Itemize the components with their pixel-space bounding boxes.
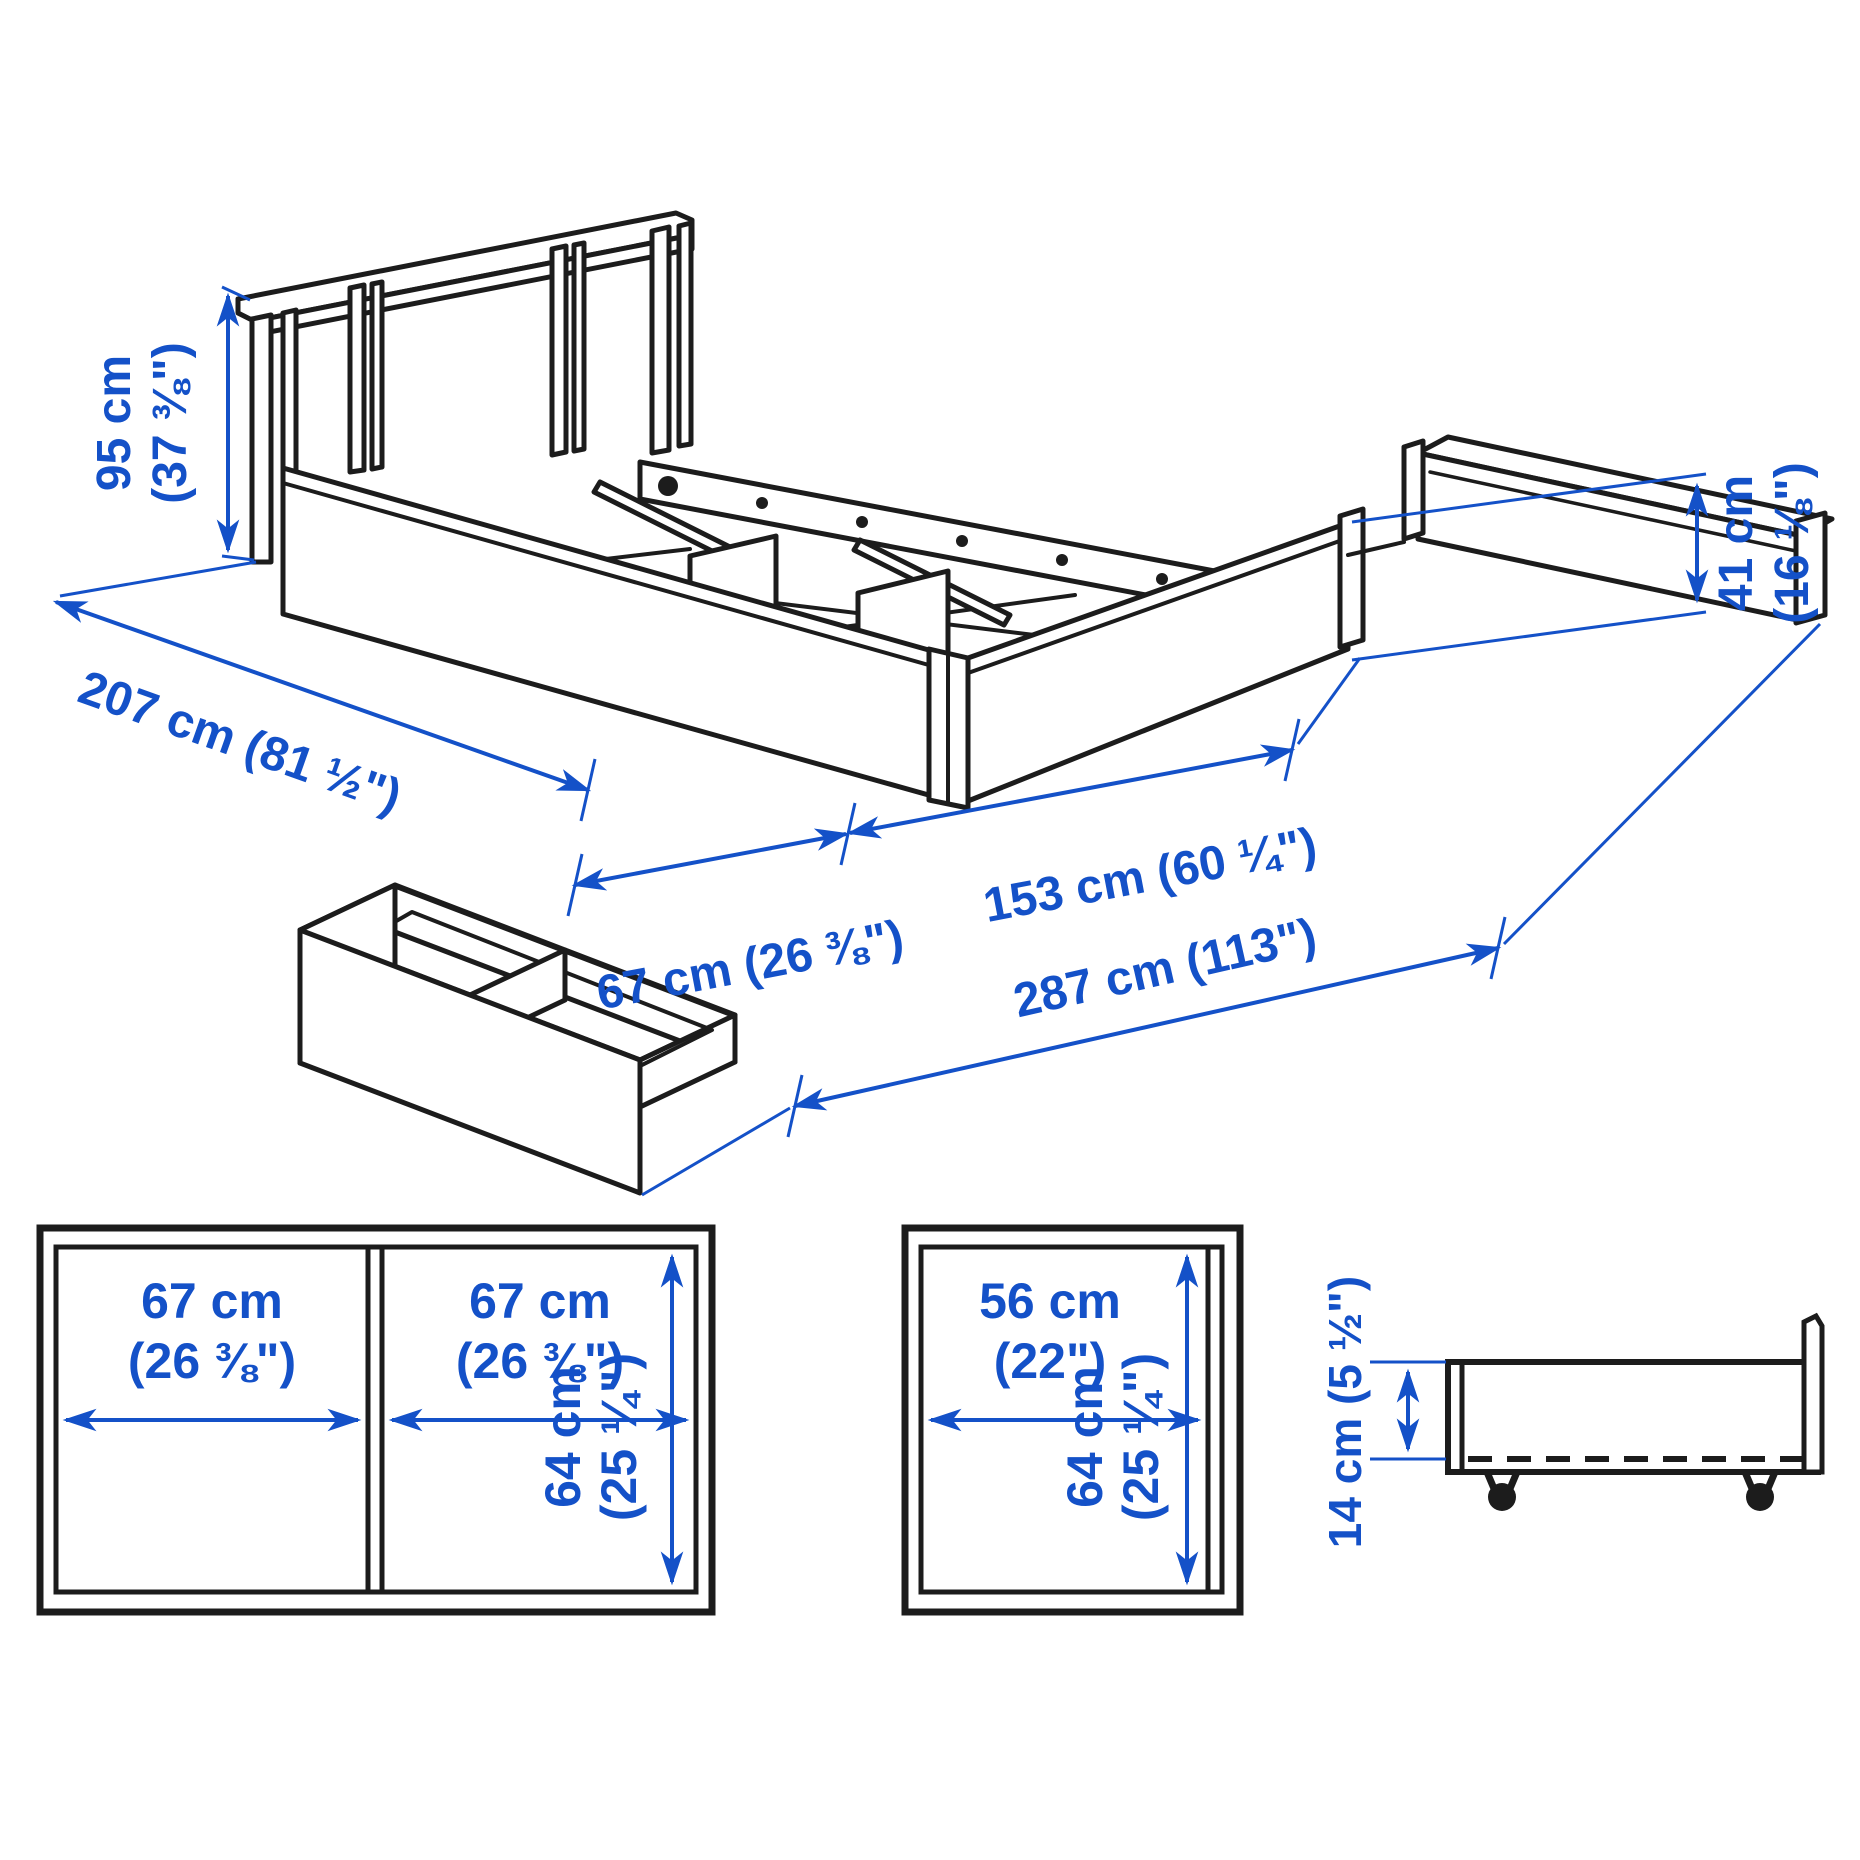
profile-height-label: 14 cm (5 ½") <box>1319 1276 1371 1548</box>
label-width: 153 cm (60 ¼") <box>979 818 1321 933</box>
headboard-height-inches: (37 ⅜") <box>144 342 197 503</box>
single-box-height-label: 64 cm (25 ¼") <box>1057 1353 1169 1521</box>
rail-height-value: 41 cm <box>1710 475 1763 611</box>
double-box-cell2-width: 67 cm <box>469 1273 611 1329</box>
single-box-front-view: 56 cm (22") 64 cm (25 ¼") <box>905 1228 1240 1612</box>
double-box-height-label: 64 cm (25 ¼") <box>535 1353 647 1521</box>
width-value: 153 cm (60 ¼") <box>979 818 1321 933</box>
headboard-height-value: 95 cm <box>88 355 141 491</box>
profile-dimension <box>1370 1362 1446 1459</box>
double-box-cell1-width-inches: (26 ⅜") <box>128 1333 296 1389</box>
double-box-cell1-width: 67 cm <box>141 1273 283 1329</box>
caster-right <box>1745 1472 1775 1511</box>
double-box-height-value: 64 cm <box>535 1366 591 1508</box>
dim-headboard-height <box>222 287 254 560</box>
single-box-height-value: 64 cm <box>1057 1366 1113 1508</box>
profile-height-value: 14 cm (5 ½") <box>1319 1276 1371 1548</box>
label-drawer-extension: 67 cm (26 ⅜") <box>592 911 907 1021</box>
double-box-height-inches: (25 ¼") <box>591 1353 647 1521</box>
single-box-height-inches: (25 ¼") <box>1113 1353 1169 1521</box>
total-width-value: 287 cm (113") <box>1009 909 1321 1028</box>
length-value: 207 cm (81 ½") <box>72 661 408 824</box>
caster-left <box>1487 1472 1517 1511</box>
drawer-side-profile: 14 cm (5 ½") <box>1319 1276 1822 1548</box>
bed-illustration <box>238 213 1832 1193</box>
drawer-extension-value: 67 cm (26 ⅜") <box>592 911 907 1021</box>
rail-height-inches: (16 ⅛") <box>1766 462 1819 623</box>
double-box-front-view: 67 cm (26 ⅜") 67 cm (26 ⅜") 64 cm (25 ¼"… <box>40 1228 712 1612</box>
label-headboard-height: 95 cm (37 ⅜") <box>88 342 197 503</box>
dim-drawer-extension <box>568 803 855 916</box>
single-box-width: 56 cm <box>979 1273 1121 1329</box>
label-length: 207 cm (81 ½") <box>72 661 408 824</box>
storage-drawer-open <box>300 885 735 1193</box>
dimension-diagram: 95 cm (37 ⅜") 41 cm (16 ⅛") 207 cm (81 ½… <box>0 0 1860 1860</box>
label-total-width: 287 cm (113") <box>1009 909 1321 1028</box>
